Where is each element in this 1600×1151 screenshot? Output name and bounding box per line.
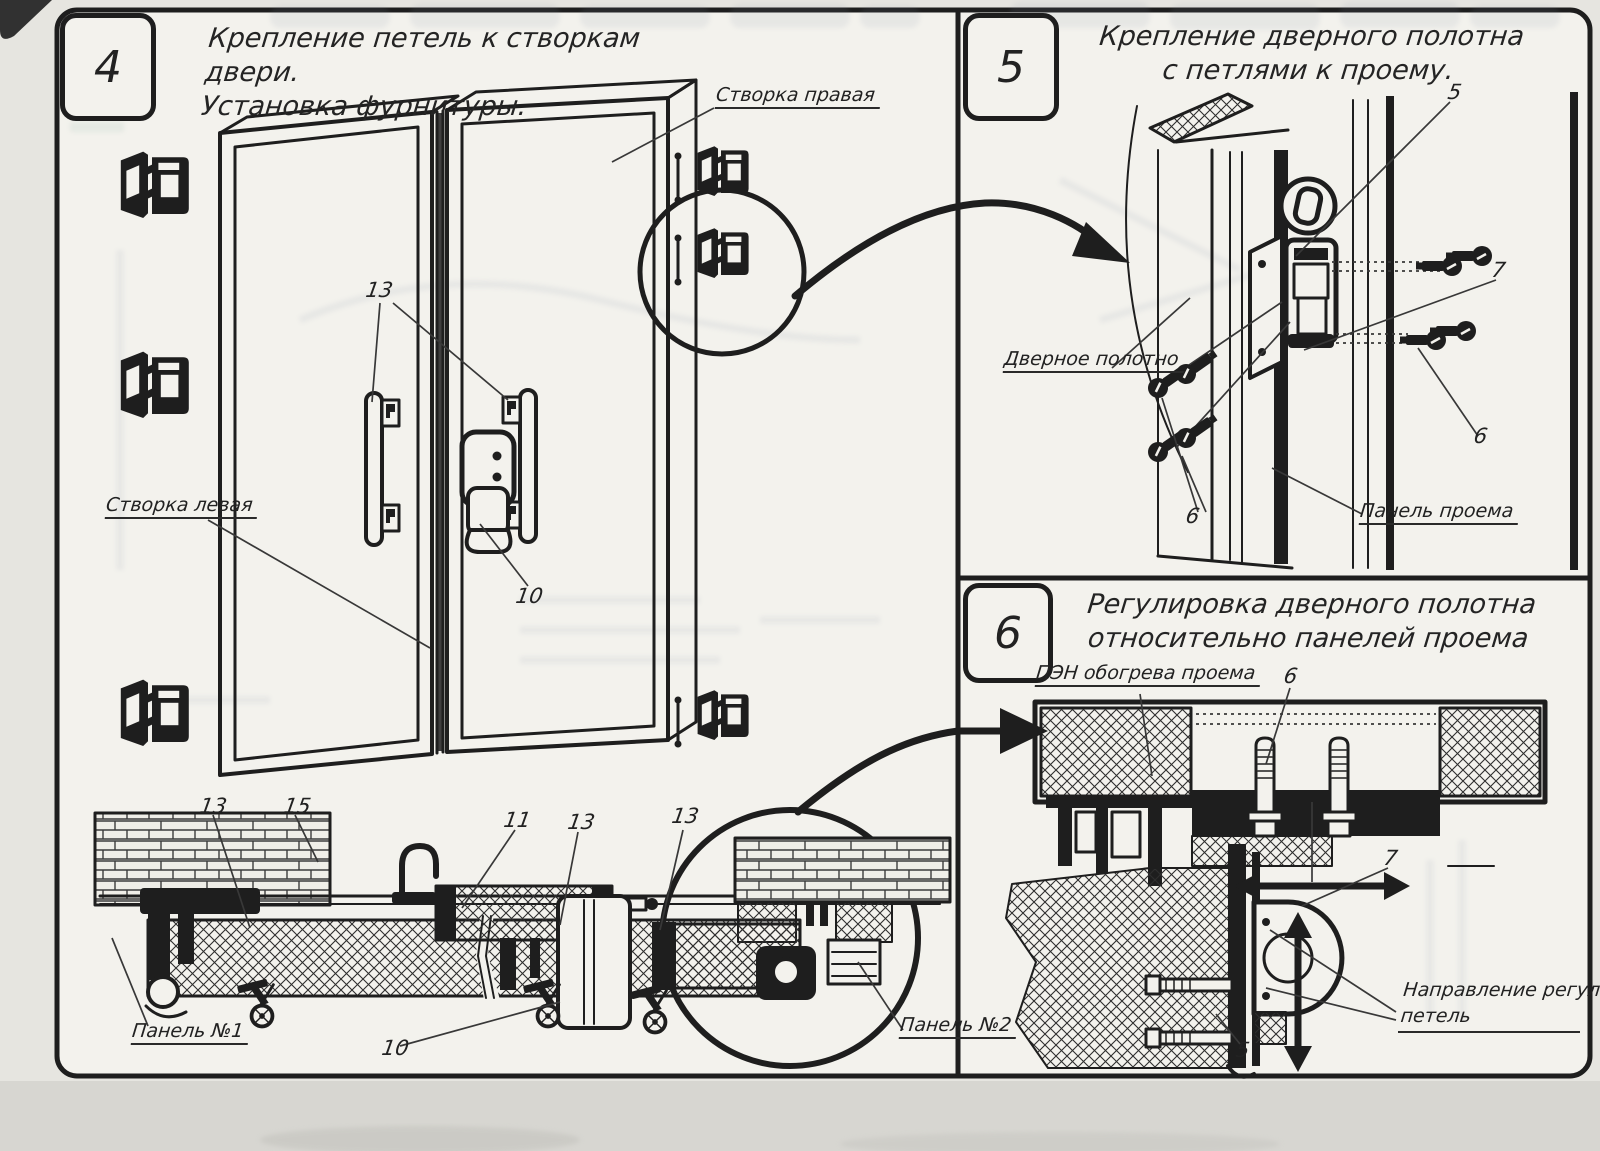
label-right-leaf: Створка правая	[715, 84, 882, 109]
label-opening-panel: Панель проема	[1359, 500, 1521, 525]
callout-15-hook: 15	[282, 794, 313, 818]
panel5-title-line1: Крепление дверного полотна	[1060, 20, 1564, 54]
panel6-number: 6	[994, 608, 1022, 659]
label-left-leaf: Створка левая	[105, 494, 260, 519]
panel5-title: Крепление дверного полотна с петлями к п…	[1056, 20, 1563, 88]
hinge-icon	[121, 352, 189, 418]
panel5-title-line2: с петлями к проему.	[1056, 54, 1560, 88]
panel6-title: Регулировка дверного полотна относительн…	[1056, 588, 1563, 656]
callout-13-right: 13	[566, 810, 597, 834]
panel4-title: Крепление петель к створкам двери. Устан…	[200, 22, 711, 123]
scan-corner-mark	[0, 0, 52, 39]
label-panel-1: Панель №1	[131, 1020, 251, 1045]
panel5-number-box: 5	[963, 13, 1059, 121]
label-adjustment-direction-line1: Направление регулировки	[1402, 978, 1600, 1004]
callout-10-bottom: 10	[380, 1036, 411, 1060]
label-adjustment-direction: Направление регулировки петель	[1399, 978, 1600, 1029]
callout-10-latch: 10	[514, 584, 545, 608]
panel5-number: 5	[997, 42, 1025, 93]
hinge-icon	[121, 152, 189, 218]
callout-13-circle: 13	[670, 804, 701, 828]
panel4-number: 4	[94, 42, 122, 93]
label-adjustment-direction-line2: петель	[1399, 1004, 1600, 1030]
scanned-assembly-sheet: 4 5 6 Крепление петель к створкам двери.…	[0, 0, 1600, 1151]
label-door-leaf: Дверное полотно	[1003, 348, 1186, 373]
label-panel-2: Панель №2	[899, 1014, 1019, 1039]
scan-bottom-band	[0, 1081, 1600, 1151]
panel4-number-box: 4	[60, 13, 156, 121]
callout-13-handles: 13	[364, 278, 395, 302]
panel6-title-line2: относительно панелей проема	[1056, 622, 1560, 656]
callout-13-section-left: 13	[198, 794, 229, 818]
panel4-title-line1: Крепление петель к створкам двери.	[203, 22, 710, 90]
callout-11-center: 11	[502, 808, 533, 832]
drawing-canvas	[0, 0, 1600, 1151]
panel6-title-line1: Регулировка дверного полотна	[1060, 588, 1564, 622]
hinge-icon	[121, 680, 189, 746]
label-heater: ПЭН обогрева проема	[1035, 662, 1263, 687]
panel4-title-line2: Установка фурнитуры.	[200, 90, 704, 124]
